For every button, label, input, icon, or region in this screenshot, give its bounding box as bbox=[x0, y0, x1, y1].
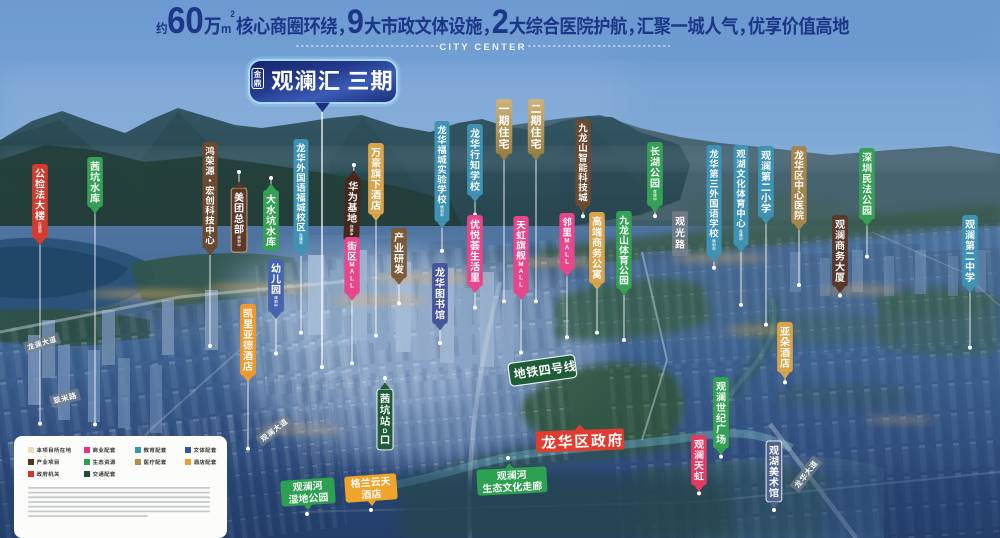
svg-text:2: 2 bbox=[492, 2, 509, 40]
svg-text:2: 2 bbox=[230, 9, 235, 20]
svg-text:CITY CENTER: CITY CENTER bbox=[439, 42, 526, 53]
svg-text:L: L bbox=[565, 258, 569, 265]
svg-text:60: 60 bbox=[167, 0, 204, 41]
svg-text:L: L bbox=[519, 282, 523, 289]
svg-text:m: m bbox=[221, 21, 231, 36]
svg-text:L: L bbox=[350, 282, 354, 289]
svg-text:D: D bbox=[383, 428, 388, 435]
svg-text:9: 9 bbox=[347, 2, 364, 40]
